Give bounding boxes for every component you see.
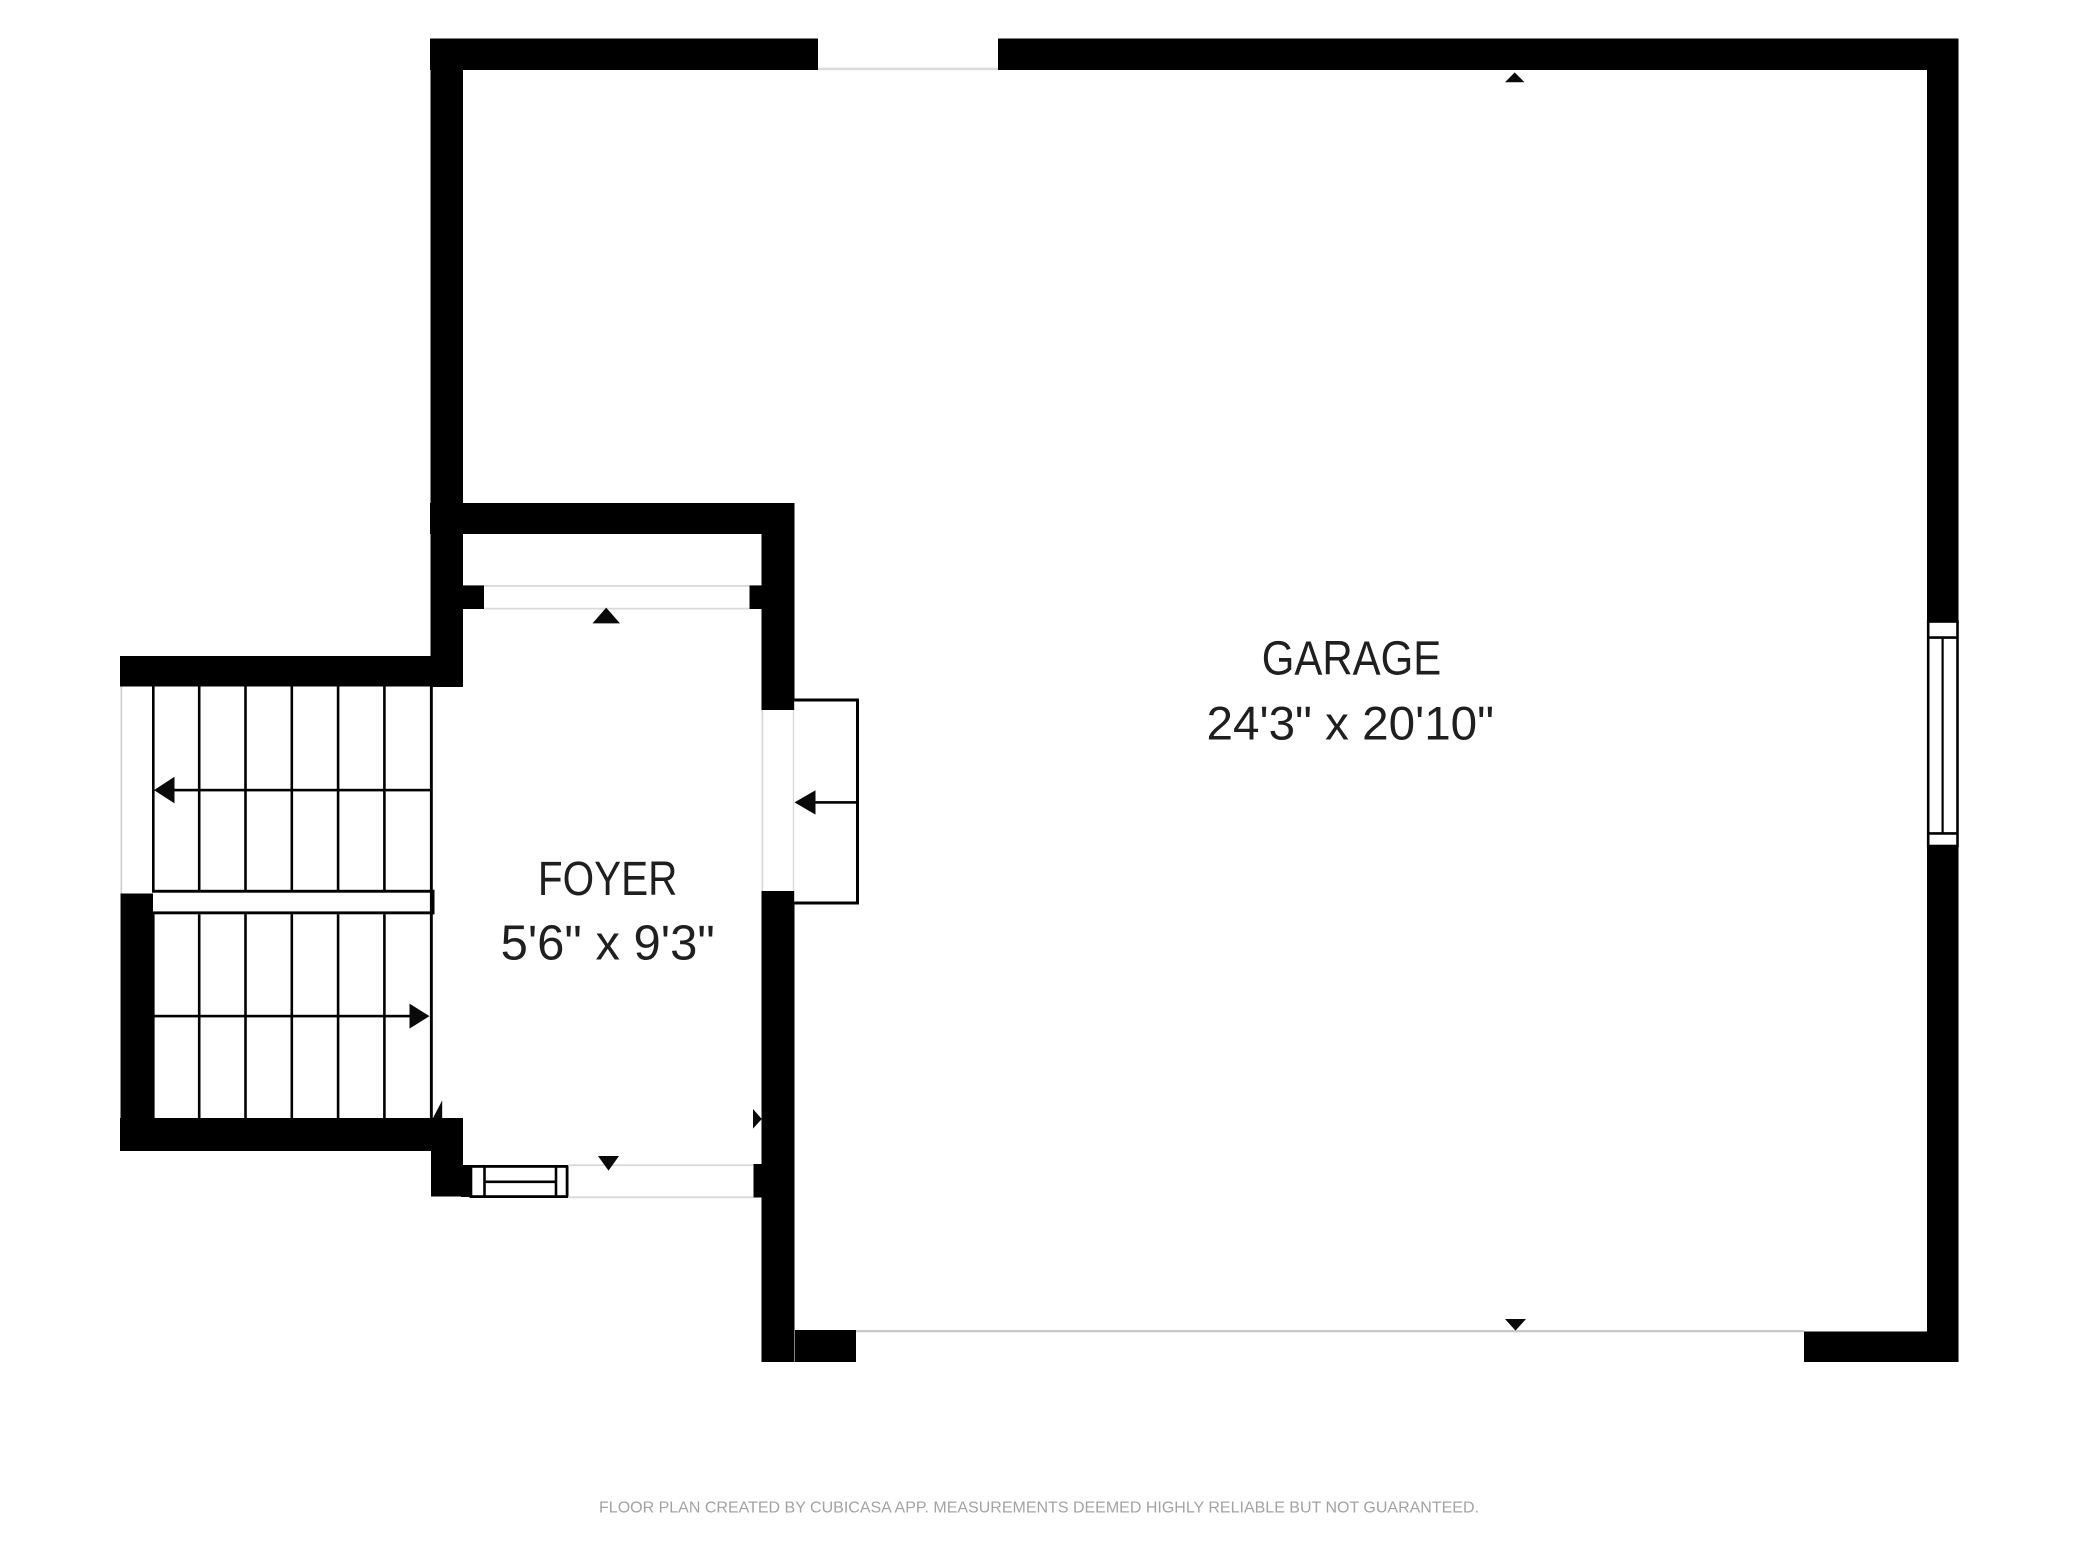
svg-text:24'3" x 20'10": 24'3" x 20'10": [1207, 697, 1495, 750]
svg-text:FOYER: FOYER: [538, 853, 677, 906]
svg-text:5'6" x 9'3": 5'6" x 9'3": [501, 916, 715, 970]
svg-text:GARAGE: GARAGE: [1262, 631, 1441, 686]
svg-text:FLOOR PLAN CREATED BY CUBICASA: FLOOR PLAN CREATED BY CUBICASA APP. MEAS…: [599, 1500, 1479, 1517]
